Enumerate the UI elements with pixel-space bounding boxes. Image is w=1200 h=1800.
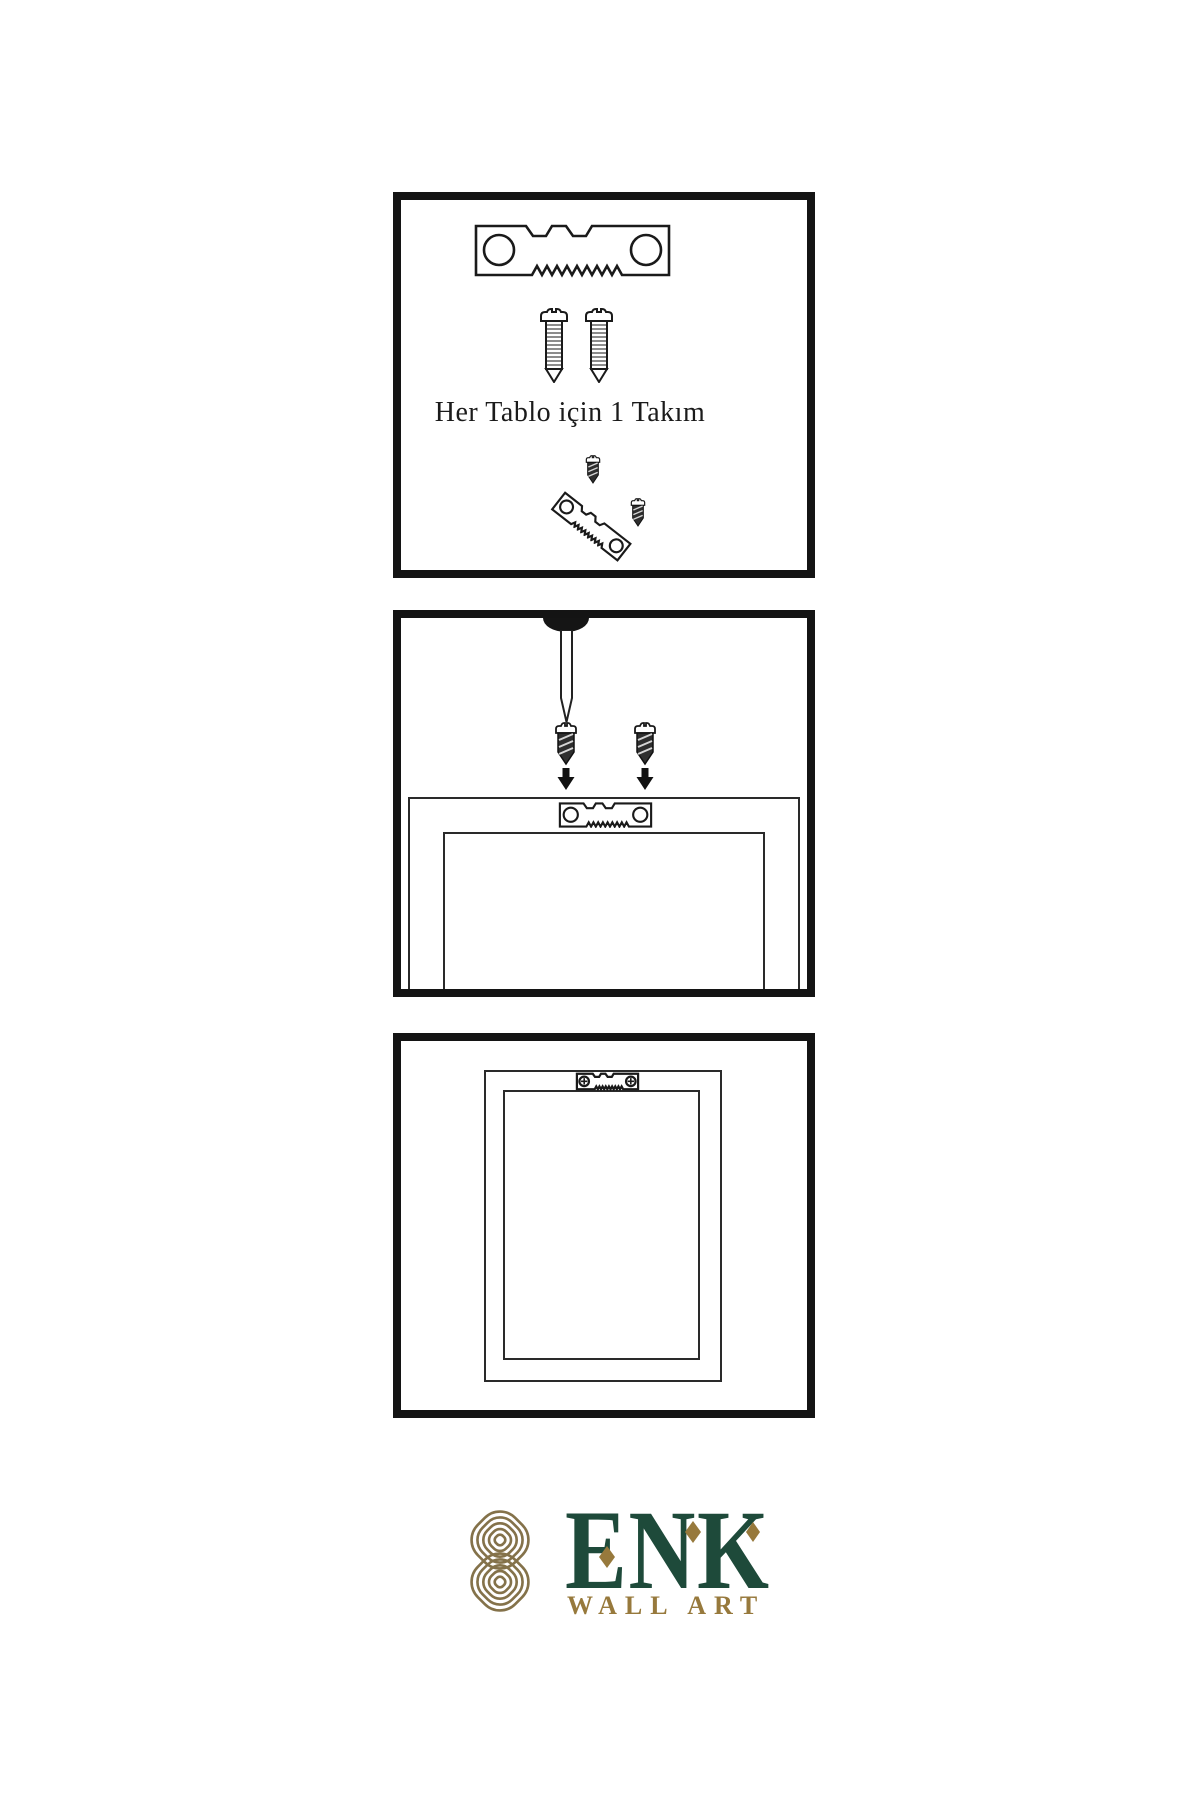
dark-screw-icon — [630, 495, 646, 529]
panel-kit-contents: Her Tablo için 1 Takım — [393, 192, 815, 578]
down-arrow-icon — [636, 768, 654, 790]
brand-subtitle: WALL ART — [567, 1591, 765, 1621]
frame-inner-outline — [503, 1090, 700, 1360]
brand-logo: ENK WALL ART — [437, 1492, 817, 1652]
frame-outer-outline — [484, 1070, 722, 1382]
dark-screw-icon — [633, 720, 657, 766]
frame-back-inner-outline — [443, 832, 765, 997]
screw-icon — [537, 307, 571, 383]
mounted-sawtooth-hanger-icon — [575, 1072, 640, 1091]
instruction-sheet: Her Tablo için 1 Takım — [0, 0, 1200, 1800]
wall-nail-icon — [558, 630, 575, 726]
down-arrow-icon — [557, 768, 575, 790]
tilted-sawtooth-hanger-icon — [549, 490, 633, 563]
panel-hung-frame — [393, 1033, 815, 1418]
panel-mounting — [393, 610, 815, 997]
dark-screw-icon — [554, 720, 578, 766]
kit-caption: Her Tablo için 1 Takım — [393, 397, 773, 429]
sawtooth-hanger-icon — [470, 223, 675, 278]
screw-icon — [582, 307, 616, 383]
dark-screw-icon — [585, 450, 601, 488]
sawtooth-hanger-icon — [553, 802, 658, 828]
knot-emblem-icon — [439, 1500, 561, 1622]
